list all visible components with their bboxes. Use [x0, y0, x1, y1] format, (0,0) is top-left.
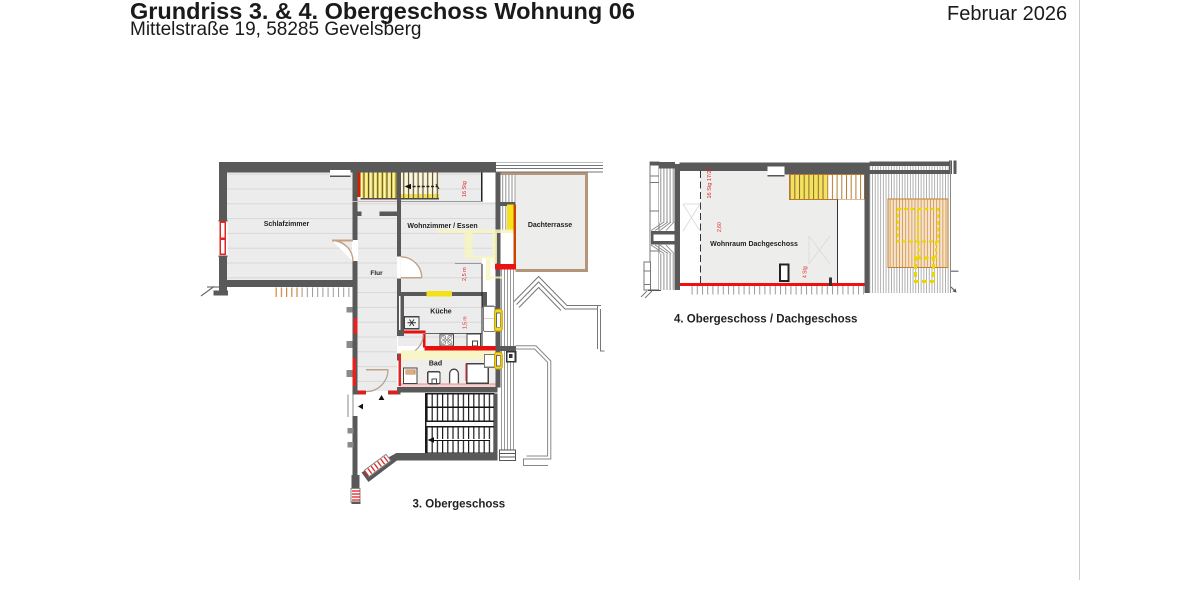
svg-text:4 Stg: 4 Stg [803, 266, 809, 278]
svg-text:Bad: Bad [429, 360, 442, 367]
svg-text:Küche: Küche [430, 309, 452, 316]
svg-text:2,5 m: 2,5 m [462, 267, 468, 281]
svg-text:Schlafzimmer: Schlafzimmer [264, 221, 310, 228]
svg-text:Wohnraum Dachgeschoss: Wohnraum Dachgeschoss [710, 241, 798, 248]
svg-text:4. Obergeschoss / Dachgeschoss: 4. Obergeschoss / Dachgeschoss [674, 314, 857, 326]
svg-text:3. Obergeschoss: 3. Obergeschoss [413, 499, 506, 511]
svg-text:2,60: 2,60 [717, 222, 723, 232]
svg-text:Dachterrasse: Dachterrasse [528, 222, 572, 229]
svg-text:16 Stg: 16 Stg [462, 181, 468, 197]
svg-text:Flur: Flur [370, 270, 383, 277]
svg-text:Wohnzimmer / Essen: Wohnzimmer / Essen [407, 223, 477, 230]
svg-text:1,5 m: 1,5 m [463, 316, 469, 329]
svg-text:16 Stg 17/29: 16 Stg 17/29 [707, 167, 713, 198]
